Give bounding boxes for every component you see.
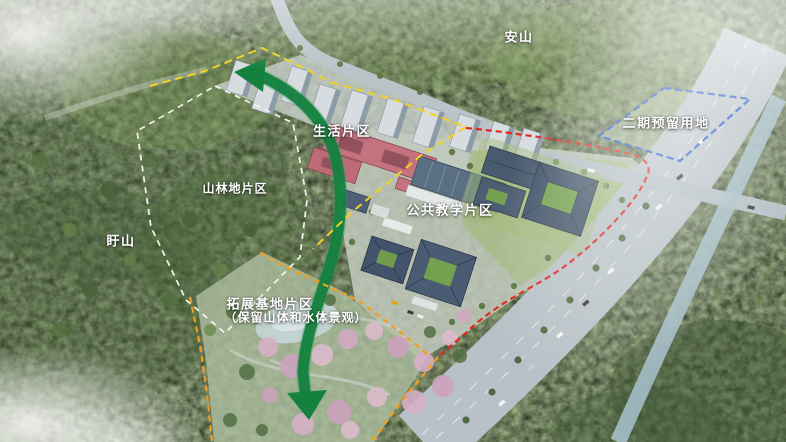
label-expansion-note: （保留山体和水体景观）: [224, 309, 367, 326]
masterplan-rendering: 安山 二期预留用地 生活片区 山林地片区 盱山 公共教学片区 拓展基地片区 （保…: [0, 0, 786, 442]
label-mountain-north: 安山: [504, 27, 533, 46]
label-mountain-west: 盱山: [106, 231, 135, 250]
label-living-zone: 生活片区: [313, 121, 371, 140]
aerial-rendering: [0, 0, 786, 442]
label-teaching-zone: 公共教学片区: [406, 200, 493, 219]
label-forest-zone: 山林地片区: [202, 180, 267, 197]
label-phase2-reserved: 二期预留用地: [622, 113, 709, 132]
